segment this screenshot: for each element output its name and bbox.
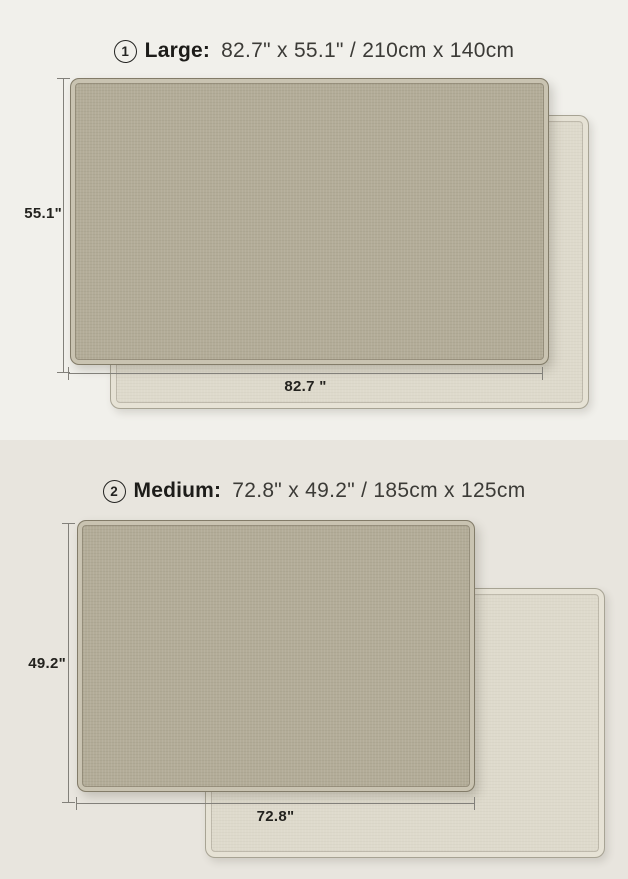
height-label: 49.2"	[14, 655, 66, 672]
height-dimension-line	[63, 78, 64, 373]
section-medium-header: 2 Medium: 72.8" x 49.2" / 185cm x 125cm	[0, 476, 628, 506]
width-label: 72.8"	[76, 808, 475, 825]
height-dimension-line	[68, 523, 69, 803]
height-label: 55.1"	[10, 205, 62, 222]
number-2-badge-icon: 2	[103, 480, 126, 503]
size-dimensions: 72.8" x 49.2" / 185cm x 125cm	[232, 479, 525, 503]
section-medium: 2 Medium: 72.8" x 49.2" / 185cm x 125cm …	[0, 440, 628, 879]
width-dimension-line	[76, 803, 475, 804]
width-label: 82.7 "	[68, 378, 543, 395]
badge-number: 1	[121, 44, 129, 59]
rug-front-side	[77, 520, 475, 792]
number-1-badge-icon: 1	[114, 40, 137, 63]
size-dimensions: 82.7" x 55.1" / 210cm x 140cm	[221, 39, 514, 63]
size-name: Large:	[145, 39, 210, 63]
badge-number: 2	[110, 484, 118, 499]
size-guide-image: 1 Large: 82.7" x 55.1" / 210cm x 140cm 5…	[0, 0, 628, 879]
width-dimension-line	[68, 373, 543, 374]
section-large: 1 Large: 82.7" x 55.1" / 210cm x 140cm 5…	[0, 0, 628, 440]
size-name: Medium:	[134, 479, 222, 503]
rug-front-side	[70, 78, 549, 365]
section-large-header: 1 Large: 82.7" x 55.1" / 210cm x 140cm	[0, 36, 628, 66]
